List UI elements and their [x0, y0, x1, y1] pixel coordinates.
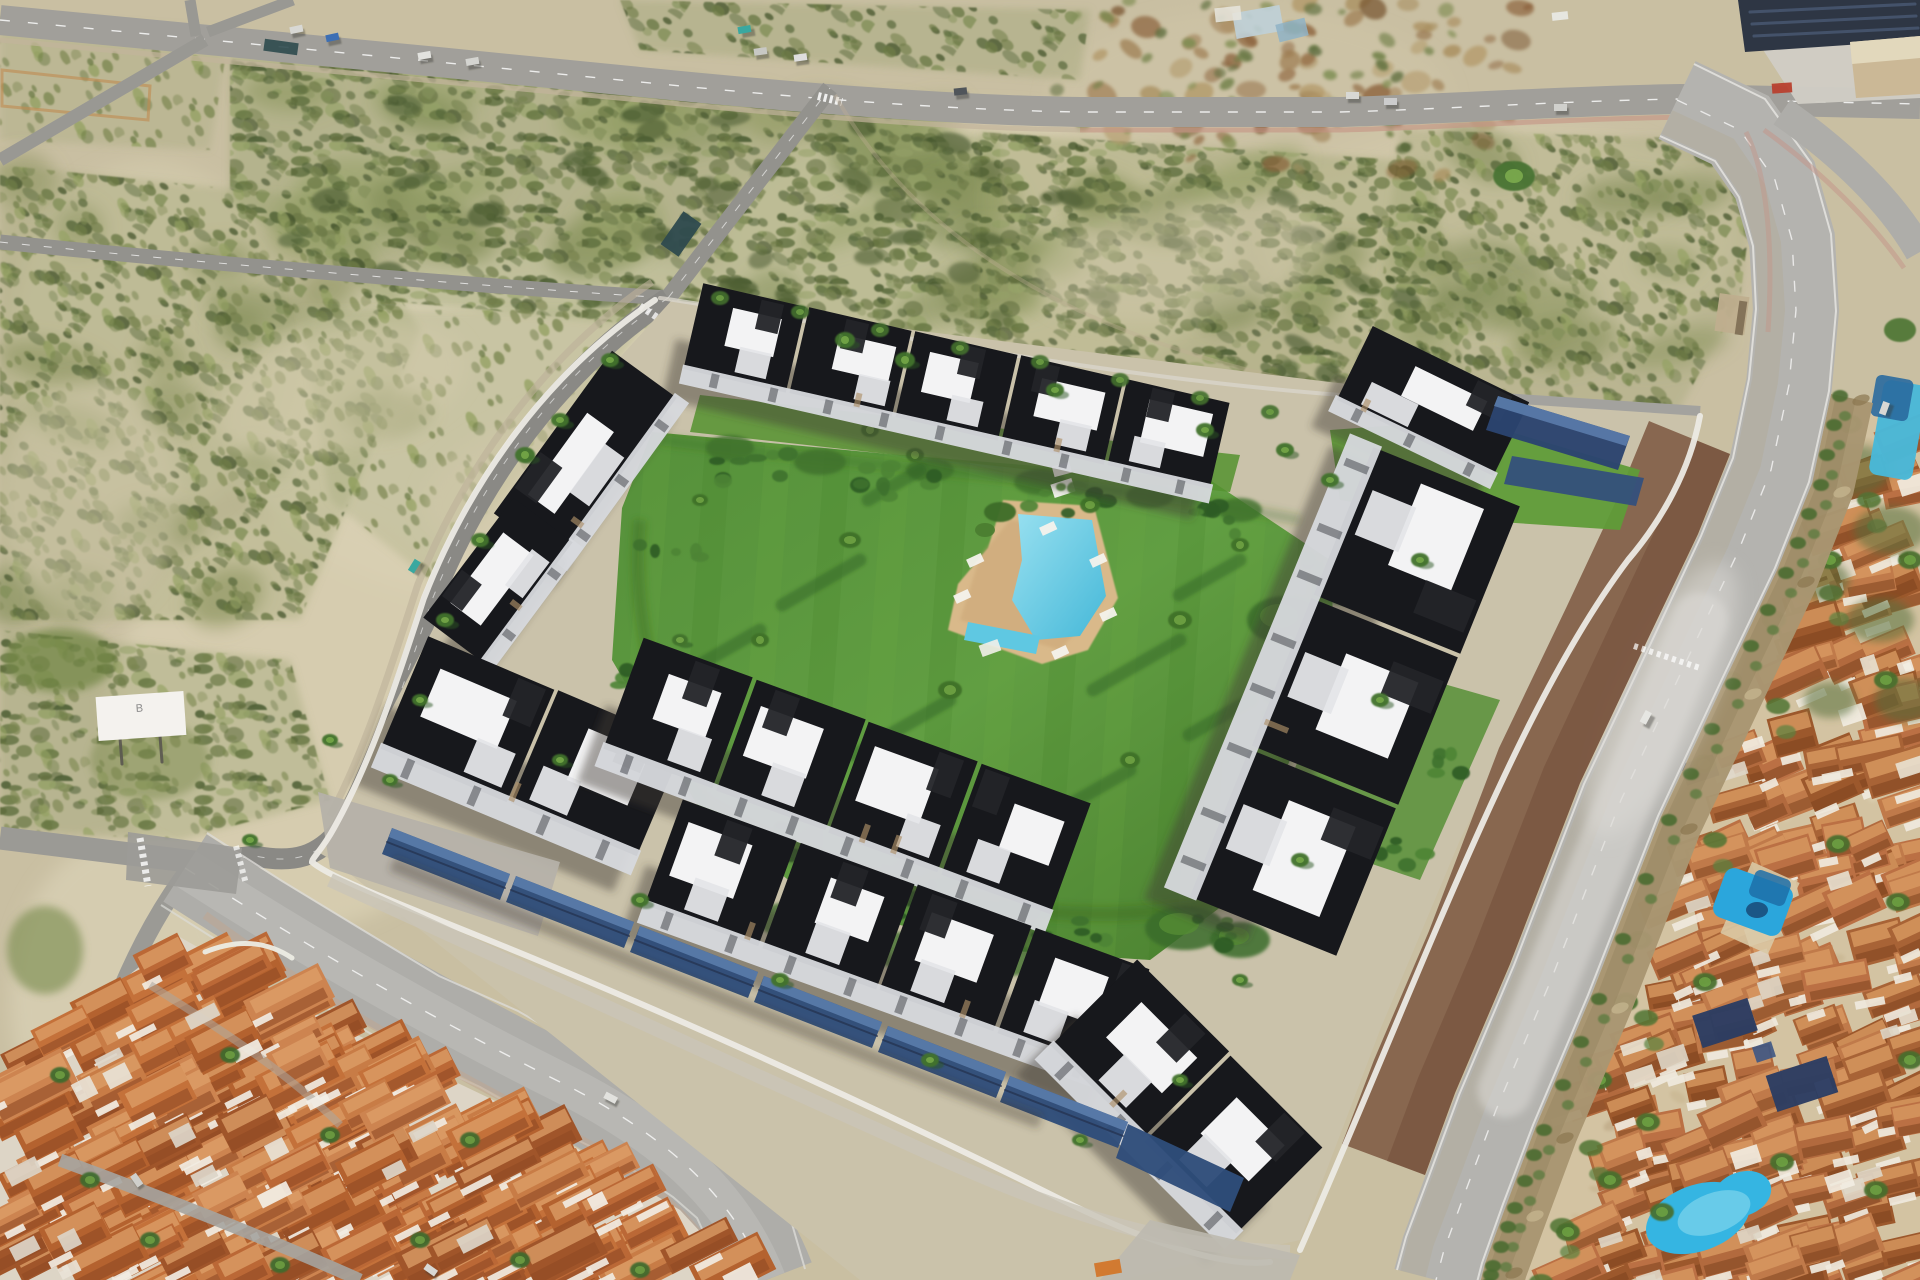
- svg-text:B: B: [135, 703, 143, 715]
